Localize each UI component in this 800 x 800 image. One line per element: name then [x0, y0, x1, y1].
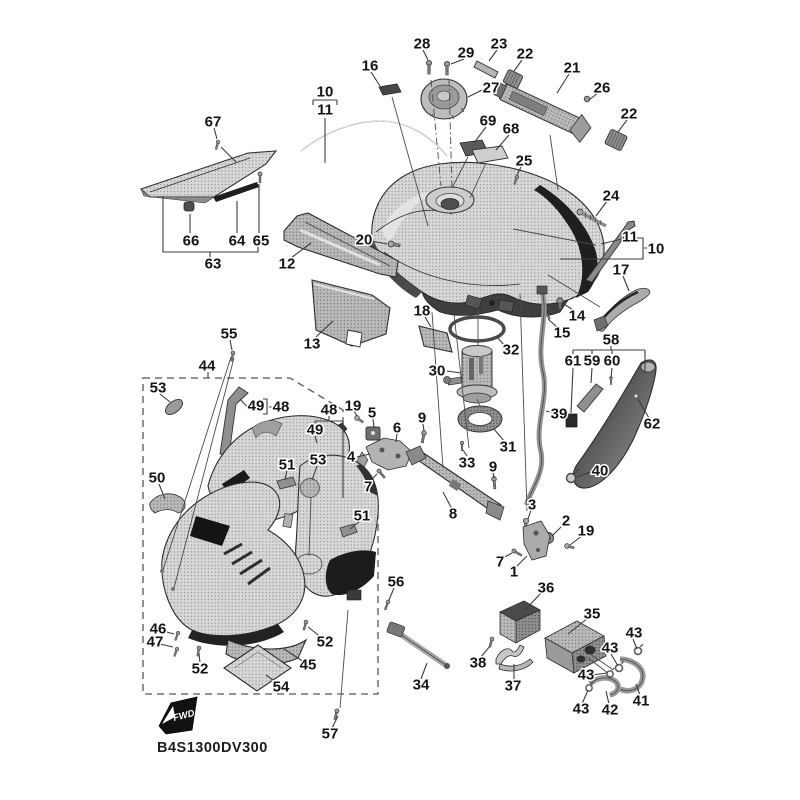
bracket-1	[523, 521, 550, 560]
screw-52b	[302, 620, 308, 631]
callout-40: 40	[592, 463, 609, 480]
screw-9b	[491, 476, 497, 489]
callout-4: 4	[347, 449, 356, 466]
screw-26	[584, 96, 590, 102]
callout-62: 62	[644, 416, 661, 433]
callout-13: 13	[304, 336, 321, 353]
callout-34: 34	[413, 677, 430, 694]
callout-49: 49	[307, 422, 324, 439]
callout-22: 22	[517, 46, 534, 63]
callout-25: 25	[516, 153, 533, 170]
callout-35: 35	[584, 606, 601, 623]
callout-26: 26	[594, 80, 611, 97]
hose-39	[527, 286, 547, 508]
callout-7: 7	[364, 479, 372, 496]
callout-61: 61	[565, 353, 582, 370]
callout-29: 29	[458, 45, 475, 62]
callout-43: 43	[573, 701, 590, 718]
callout-63: 63	[205, 256, 222, 273]
canister-35	[545, 621, 606, 673]
callout-10: 10	[317, 84, 334, 101]
damper-5	[366, 427, 380, 440]
callout-1: 1	[510, 564, 518, 581]
callout-58: 58	[603, 332, 620, 349]
callout-6: 6	[393, 420, 401, 437]
callout-52: 52	[317, 634, 334, 651]
callout-55: 55	[221, 326, 238, 343]
callout-43: 43	[626, 625, 643, 642]
callout-45: 45	[300, 657, 317, 674]
strip-59	[577, 384, 603, 412]
callout-22: 22	[621, 106, 638, 123]
screw-65	[258, 172, 262, 183]
callout-19: 19	[345, 398, 362, 415]
callout-69: 69	[480, 113, 497, 130]
cover-50	[150, 494, 185, 513]
screw-38	[488, 637, 494, 648]
bolt-19a	[354, 415, 365, 424]
pad-53b	[301, 479, 320, 498]
callout-66: 66	[183, 233, 200, 250]
fwd-logo: FWD	[159, 697, 197, 734]
callout-21: 21	[564, 60, 581, 77]
top-cover-panel-63	[141, 140, 276, 211]
callout-10: 10	[648, 241, 665, 258]
pad-18	[419, 326, 452, 352]
callout-5: 5	[368, 405, 376, 422]
callout-43: 43	[578, 667, 595, 684]
callout-37: 37	[505, 678, 522, 695]
callout-53: 53	[310, 452, 327, 469]
pad-13	[312, 280, 390, 347]
callout-51: 51	[354, 508, 371, 525]
right-cover	[296, 455, 379, 600]
screw-7a	[376, 468, 386, 479]
callout-9: 9	[418, 410, 426, 427]
callout-3: 3	[528, 497, 536, 514]
callout-64: 64	[229, 233, 246, 250]
pipe-23	[474, 61, 498, 78]
callout-19: 19	[578, 523, 595, 540]
callout-12: 12	[279, 256, 296, 273]
callout-33: 33	[459, 455, 476, 472]
screw-29	[444, 61, 449, 75]
callout-47: 47	[147, 634, 164, 651]
callout-2: 2	[562, 513, 570, 530]
fuel-pump-30	[444, 346, 498, 404]
callout-39: 39	[551, 406, 568, 423]
callout-38: 38	[470, 655, 487, 672]
rod-34	[386, 622, 450, 669]
callout-14: 14	[569, 308, 586, 325]
screw-28	[426, 60, 431, 74]
callout-49: 49	[248, 398, 265, 415]
callout-68: 68	[503, 121, 520, 138]
callout-11: 11	[317, 102, 333, 119]
callout-57: 57	[322, 726, 339, 743]
parts-diagram-page: 2823292216212726101122696768252411206664…	[0, 0, 800, 800]
screw-7b	[511, 548, 523, 557]
exploded-parts-diagram: 2823292216212726101122696768252411206664…	[0, 0, 800, 800]
part-code: B4S1300DV300	[157, 740, 268, 756]
callout-7: 7	[496, 554, 504, 571]
callout-53: 53	[150, 380, 167, 397]
bolt-19b	[564, 543, 575, 550]
callout-30: 30	[429, 363, 446, 380]
fuel-cap-27	[421, 79, 467, 119]
callout-42: 42	[602, 702, 619, 719]
callout-60: 60	[604, 353, 621, 370]
callout-17: 17	[613, 262, 630, 279]
callout-52: 52	[192, 661, 209, 678]
screw-56	[383, 600, 390, 611]
callout-50: 50	[149, 470, 166, 487]
callout-43: 43	[602, 640, 619, 657]
callout-67: 67	[205, 114, 222, 131]
screw-52a	[196, 646, 202, 657]
callout-8: 8	[449, 506, 457, 523]
callout-65: 65	[253, 233, 270, 250]
o-ring-32	[450, 317, 504, 341]
callout-48: 48	[321, 402, 338, 419]
callout-41: 41	[633, 693, 650, 710]
callout-48: 48	[273, 399, 290, 416]
callout-9: 9	[489, 459, 497, 476]
callout-31: 31	[500, 439, 517, 456]
screw-33	[460, 441, 464, 451]
callout-36: 36	[538, 580, 555, 597]
callout-59: 59	[584, 353, 601, 370]
callout-20: 20	[356, 232, 373, 249]
plate-16	[379, 84, 401, 95]
collar-22b	[604, 129, 627, 151]
screw-57	[333, 708, 340, 720]
callout-28: 28	[414, 36, 431, 53]
pad-53a	[163, 397, 186, 418]
grommet-66	[184, 202, 194, 211]
callout-51: 51	[279, 457, 296, 474]
callout-11: 11	[622, 229, 638, 246]
callout-15: 15	[554, 325, 571, 342]
callout-16: 16	[362, 58, 379, 75]
damper-strip-10-11	[301, 121, 447, 156]
screw-47	[173, 647, 180, 657]
callout-44: 44	[199, 358, 216, 375]
block-61	[566, 414, 577, 427]
screw-67	[214, 140, 220, 150]
callout-54: 54	[273, 679, 290, 696]
screw-46	[174, 631, 181, 641]
callout-18: 18	[414, 303, 431, 320]
callout-23: 23	[491, 36, 508, 53]
canister-36	[500, 601, 540, 643]
callout-27: 27	[483, 80, 500, 97]
callout-32: 32	[503, 342, 520, 359]
bracket-17	[594, 288, 650, 331]
screw-9a	[420, 430, 427, 443]
callout-56: 56	[388, 574, 405, 591]
callout-24: 24	[603, 188, 620, 205]
